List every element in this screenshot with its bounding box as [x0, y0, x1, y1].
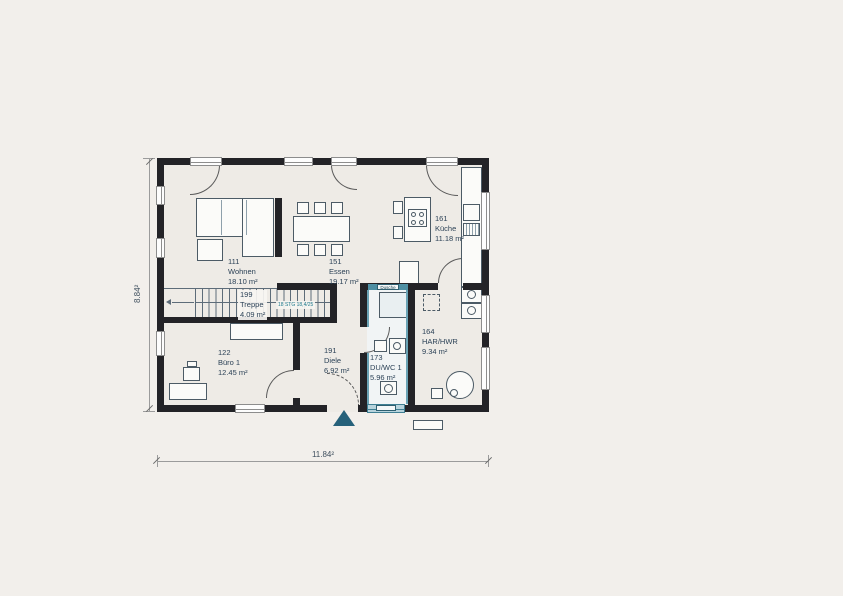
entrance-marker	[333, 410, 355, 426]
wall-segment	[405, 405, 489, 412]
dining-chair	[314, 244, 326, 256]
room-number: 111	[228, 257, 239, 266]
room-name: Treppe	[240, 300, 264, 309]
utility-box	[431, 388, 443, 399]
wall-segment	[358, 405, 367, 412]
wall-segment	[157, 356, 164, 412]
cooktop-burner	[411, 212, 416, 217]
wall-segment	[482, 250, 489, 295]
wall-segment	[157, 258, 164, 331]
shower-tray	[379, 292, 408, 318]
window	[481, 347, 490, 390]
bar-stool	[393, 201, 403, 214]
wall-segment	[482, 390, 489, 412]
wall-segment	[275, 198, 282, 257]
dining-chair	[297, 244, 309, 256]
wall-segment	[277, 283, 337, 290]
window	[190, 157, 222, 166]
wall-segment	[408, 290, 415, 405]
window	[481, 295, 490, 333]
room-name: Wohnen	[228, 267, 256, 276]
room-label-wohnen: 111 Wohnen 18.10 m²	[228, 257, 258, 287]
room-area: 6.92 m²	[324, 366, 349, 375]
room-number: 199	[240, 290, 253, 299]
wall-segment	[360, 353, 367, 405]
wall-segment	[313, 158, 331, 165]
wall-segment	[222, 158, 284, 165]
shower-label: Dusche	[377, 284, 399, 290]
room-label-kueche: 161 Küche 11.18 m²	[435, 214, 464, 244]
room-area: 11.18 m²	[435, 234, 464, 243]
dimension-line-width	[157, 461, 489, 462]
sink-drainboard	[463, 223, 480, 236]
room-label-treppe: 199 Treppe 4.09 m²	[238, 290, 267, 320]
dimension-height-label: 8.84²	[133, 259, 142, 303]
desk-chair	[183, 367, 200, 381]
room-number: 191	[324, 346, 337, 355]
room-number: 164	[422, 327, 435, 336]
wall-segment	[482, 333, 489, 347]
room-number: 173	[370, 353, 383, 362]
room-label-buero: 122 Büro 1 12.45 m²	[218, 348, 248, 378]
dryer-door-icon	[467, 306, 476, 315]
sofa-cushion-line	[221, 200, 222, 235]
dining-chair	[314, 202, 326, 214]
room-number: 151	[329, 257, 342, 266]
window	[156, 331, 165, 356]
dining-table	[293, 216, 350, 242]
room-number: 161	[435, 214, 448, 223]
room-area: 9.34 m²	[422, 347, 447, 356]
room-label-essen: 151 Essen 19.17 m²	[329, 257, 359, 287]
bathroom-wall-lining	[367, 353, 369, 404]
floor-plan-canvas: Dusche 18 STG 18,4/25	[0, 0, 843, 596]
room-area: 18.10 m²	[228, 277, 258, 286]
bathroom-wall-lining	[406, 290, 408, 404]
bath-cabinet	[374, 340, 387, 352]
bathroom-wall-lining	[367, 290, 369, 327]
sideboard	[230, 323, 283, 340]
room-name: DU/WC 1	[370, 363, 402, 372]
window	[156, 186, 165, 205]
room-name: Diele	[324, 356, 341, 365]
room-label-duwc: 173 DU/WC 1 5.96 m²	[370, 353, 402, 383]
stairs-direction-arrow-icon	[166, 299, 171, 305]
window	[331, 157, 357, 166]
dining-chair	[331, 202, 343, 214]
doormat	[413, 420, 443, 430]
cooktop-burner	[411, 220, 416, 225]
sofa-cushion-line	[246, 200, 247, 235]
kitchen-sink	[463, 204, 480, 221]
wall-segment	[293, 323, 300, 370]
stairs-direction-line	[172, 302, 194, 303]
washer-door-icon	[467, 290, 476, 299]
room-label-harhwr: 164 HAR/HWR 9.34 m²	[422, 327, 458, 357]
room-area: 4.09 m²	[240, 310, 265, 319]
window	[235, 404, 265, 413]
dining-chair	[297, 202, 309, 214]
room-label-diele: 191 Diele 6.92 m²	[324, 346, 349, 376]
stairs-annotation: 18 STG 18,4/25	[276, 301, 315, 309]
sink-basin-icon	[393, 342, 401, 350]
dimension-line-height	[149, 158, 150, 412]
coffee-table	[197, 239, 223, 261]
wall-segment	[265, 405, 327, 412]
cooktop-burner	[419, 220, 424, 225]
room-number: 122	[218, 348, 231, 357]
cooktop-burner	[419, 212, 424, 217]
wall-segment	[482, 158, 489, 192]
wall-segment	[357, 158, 426, 165]
wall-segment	[157, 158, 164, 186]
dining-chair	[331, 244, 343, 256]
room-area: 19.17 m²	[329, 277, 359, 286]
desk	[169, 383, 207, 400]
bar-stool	[393, 226, 403, 239]
room-name: Essen	[329, 267, 350, 276]
window	[481, 192, 490, 250]
room-area: 5.96 m²	[370, 373, 395, 382]
window	[284, 157, 313, 166]
window	[426, 157, 458, 166]
kitchen-cabinet	[399, 261, 419, 284]
chair-backrest	[187, 361, 197, 367]
room-area: 12.45 m²	[218, 368, 248, 377]
wall-segment	[415, 283, 438, 290]
wall-segment	[157, 405, 235, 412]
room-name: Büro 1	[218, 358, 240, 367]
dimension-width-label: 11.84²	[157, 450, 489, 459]
room-name: Küche	[435, 224, 456, 233]
wall-segment	[463, 283, 482, 290]
window-label-box	[376, 405, 396, 411]
toilet-bowl-icon	[384, 384, 393, 393]
shaft-dashed-box	[423, 294, 440, 311]
water-heater-valve	[450, 389, 458, 397]
room-name: HAR/HWR	[422, 337, 458, 346]
wall-segment	[157, 205, 164, 238]
window	[156, 238, 165, 258]
wall-segment	[293, 398, 300, 405]
